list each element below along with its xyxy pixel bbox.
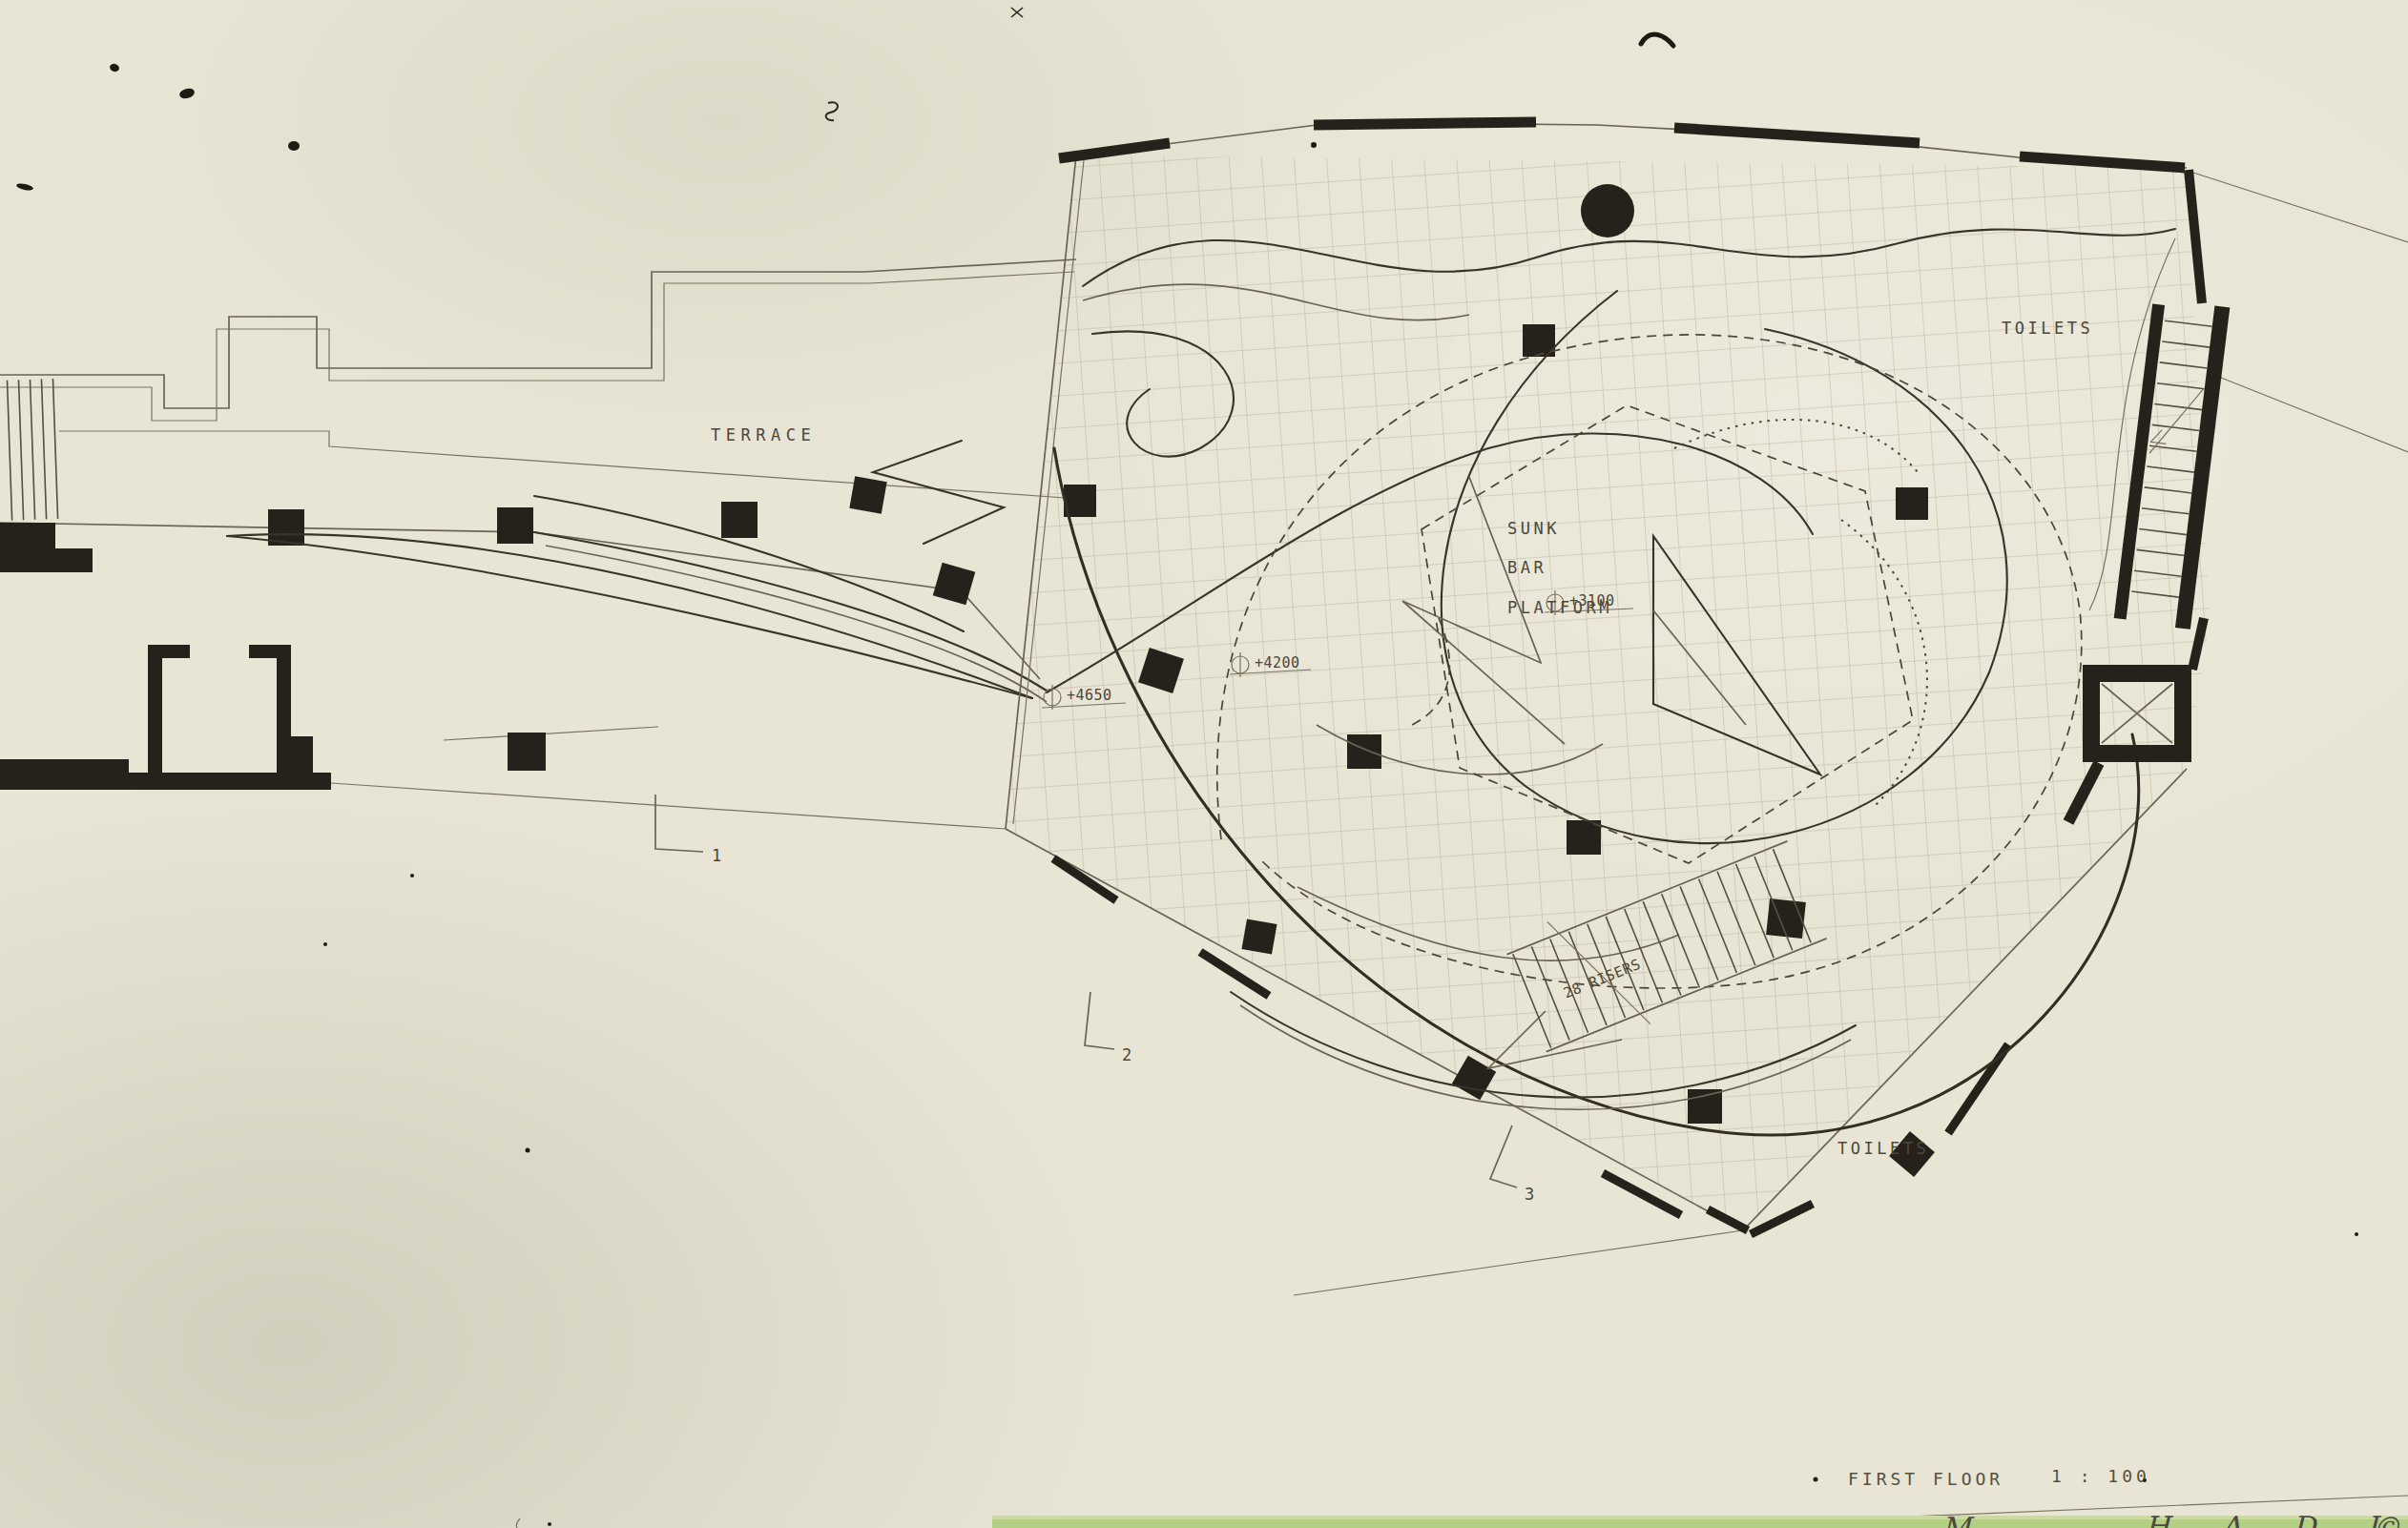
speck [16,182,34,192]
signature-mark: © [2372,1511,2408,1528]
toilets-bottom-label: TOILETS [1837,1139,1929,1158]
parapet-outer-line [0,259,1076,408]
stair-tread [18,380,23,520]
wall-block-bottom-left [0,759,129,790]
column [1688,1089,1722,1124]
column [508,733,546,771]
stair-tread [52,379,57,519]
level-value: +4650 [1067,687,1112,704]
leaf-curve [227,534,1032,698]
scale-value: 1 : 100 [2051,1466,2150,1486]
terrace-floor-edge-upper [59,431,1079,499]
speck [178,87,196,100]
column [721,502,758,538]
stair-tread [41,379,46,519]
column [1896,487,1928,520]
wall-step [286,736,313,774]
speck [1311,142,1317,148]
speck [288,141,300,151]
speck [526,1148,530,1153]
marker-bracket [655,795,703,852]
marker-bracket [1490,1125,1517,1187]
terrace-wing [0,259,1079,829]
column [1347,734,1381,769]
floor-plan-drawing: 28 RISERS +4650 +4200 +3 [0,0,2408,1528]
toilets-top-label: TOILETS [2002,319,2093,338]
site-line-bottom [1294,1230,1743,1295]
scanned-drawing-sheet: { "document": { "kind": "architectural f… [0,0,2408,1528]
round-column [1581,184,1634,237]
speck [2355,1232,2358,1236]
marker-number: 3 [1525,1185,1534,1204]
speck [109,63,120,73]
column [1241,919,1277,954]
bar-label: BAR [1507,558,1547,577]
marker-bracket [1085,992,1114,1049]
column [1567,820,1601,855]
speck-star [1011,8,1023,17]
sunk-label: SUNK [1507,519,1560,538]
signature-strip: M H A D I D © [516,1510,2408,1528]
speck [323,942,327,946]
site-line-topright [2190,172,2408,242]
terrace-label: TERRACE [711,425,816,444]
stair-tread [30,380,34,520]
leaf-curve [227,536,1032,698]
wall-segment [2020,156,2185,168]
speck [410,874,414,878]
stair-tread [7,381,11,521]
wall-block-left [0,523,93,572]
wall-stub-right-cap [249,645,291,658]
hall-ceiling-grid [1006,155,2210,1230]
signature-name: H A D I D [2145,1510,2408,1528]
speck-squiggle [826,102,838,120]
title-dot [1814,1477,1818,1482]
wall-segment [1674,128,1920,143]
signature-prefix: M [1941,1511,1992,1528]
speck-squiggle [1641,34,1673,46]
floor-title: FIRST FLOOR [1848,1469,2003,1489]
site-line-right [2211,374,2408,452]
marker-number: 1 [712,846,721,865]
column [497,507,533,544]
title-dot [2143,1478,2147,1482]
level-value: +4200 [1255,654,1300,671]
column [849,476,886,513]
marker-number: 2 [1122,1045,1131,1064]
wall-stub-left-cap [148,645,190,658]
flow-line [534,532,1047,691]
entry-stair [7,379,57,521]
handwriting-dot [548,1522,551,1526]
corridor-inner-line [444,727,658,740]
handwriting-mark [516,1518,521,1528]
parapet-inner-line [0,272,1074,421]
wall-stub-left [148,645,162,776]
platform-label: PLATFORM [1507,598,1612,617]
corridor-line [331,783,1006,829]
wall-segment [1314,122,1536,125]
